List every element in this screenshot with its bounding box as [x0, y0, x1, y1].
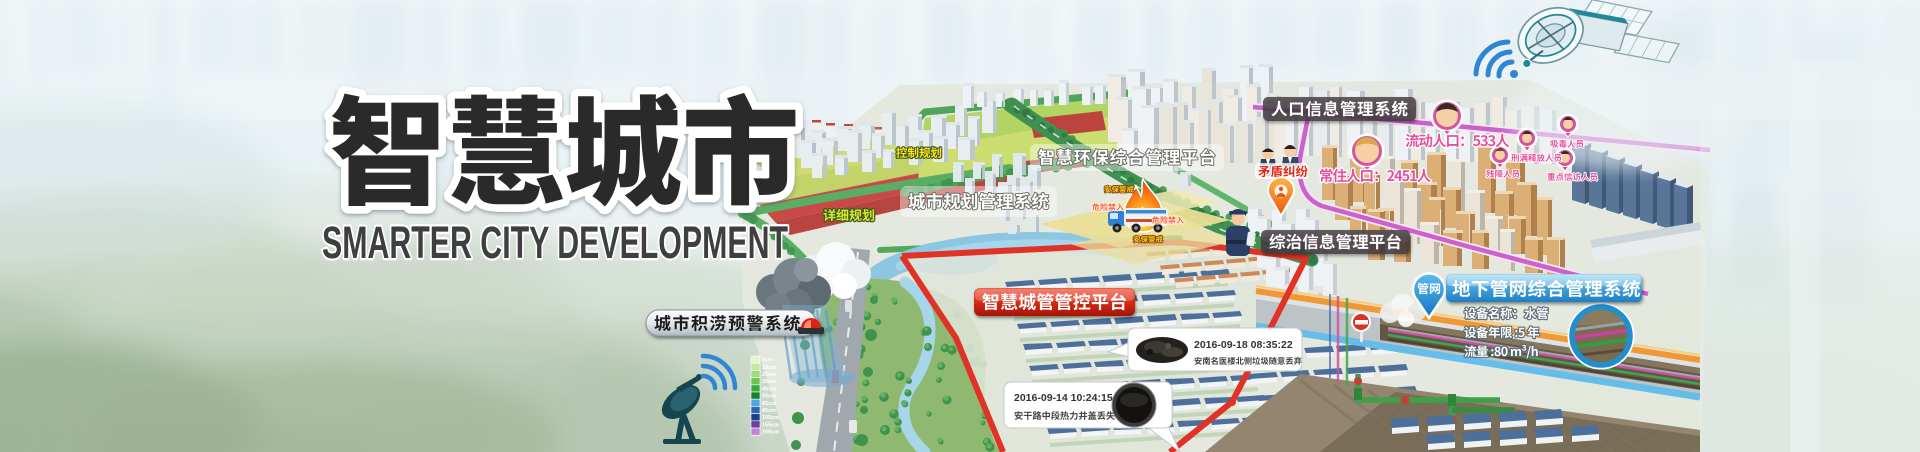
svg-text:85cm: 85cm: [762, 408, 776, 414]
svg-text:155cm: 155cm: [762, 422, 779, 428]
svg-text:2016-09-18 08:35:22: 2016-09-18 08:35:22: [1194, 339, 1293, 351]
svg-text:25cm: 25cm: [762, 372, 776, 378]
svg-text:105cm: 105cm: [762, 415, 779, 421]
svg-text:5cm: 5cm: [762, 358, 773, 364]
svg-text:35cm: 35cm: [762, 379, 776, 385]
svg-text:205cm: 205cm: [762, 430, 779, 436]
svg-text:55cm: 55cm: [762, 394, 776, 400]
svg-text:65cm: 65cm: [762, 401, 776, 407]
svg-text:2016-09-14 10:24:15: 2016-09-14 10:24:15: [1014, 392, 1113, 404]
svg-text:SMARTER CITY DEVELOPMENT: SMARTER CITY DEVELOPMENT: [322, 217, 788, 268]
svg-text:15cm: 15cm: [762, 365, 776, 371]
svg-text:45cm: 45cm: [762, 386, 776, 392]
